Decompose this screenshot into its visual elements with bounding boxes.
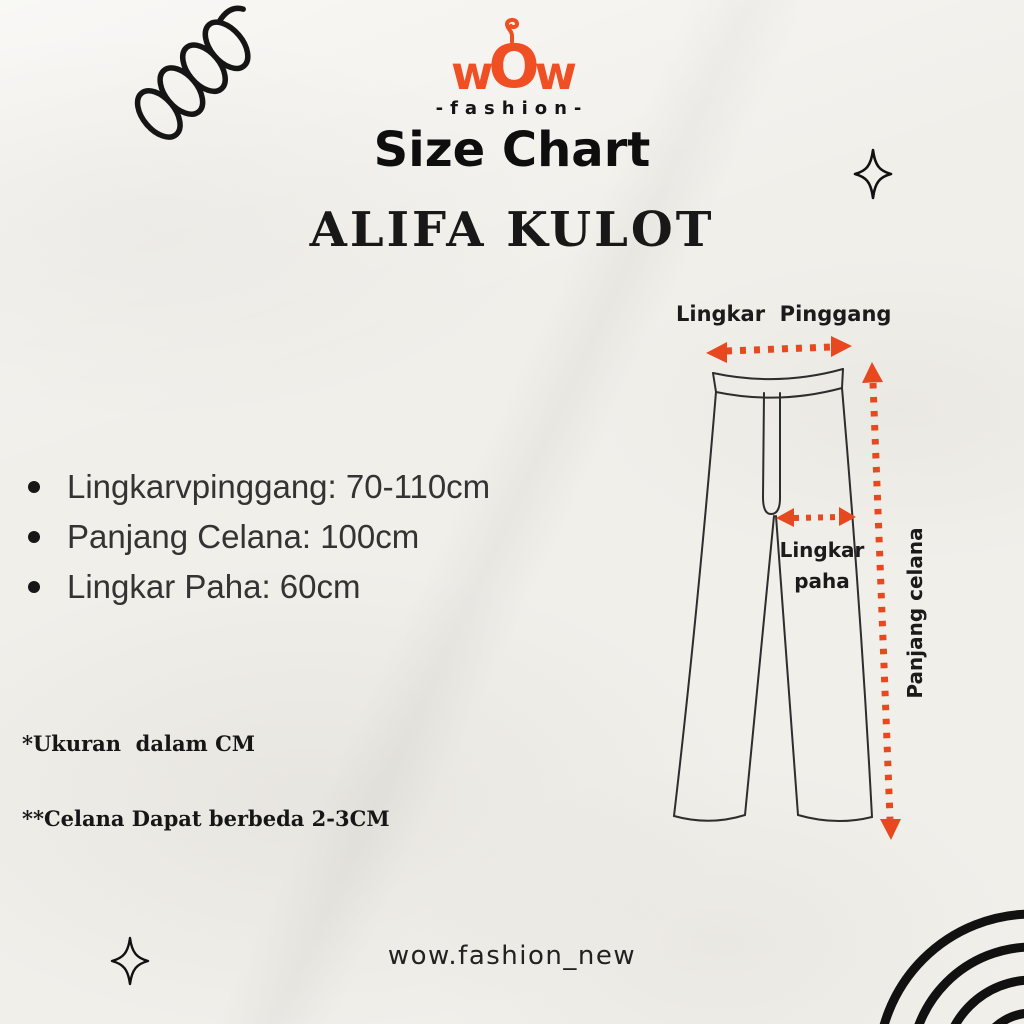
measurement-text: Lingkar Paha: 60cm <box>67 568 361 606</box>
footnote-line: *Ukuran dalam CM <box>22 731 390 756</box>
footnote-line: **Celana Dapat berbeda 2-3CM <box>22 806 390 831</box>
logo-letter: w <box>535 53 574 94</box>
page-title: Size Chart <box>0 122 1024 178</box>
waist-measure-label: Lingkar Pinggang <box>676 302 886 326</box>
waist-measure-arrow <box>706 336 852 363</box>
logo-letter: w <box>451 53 490 94</box>
product-name: ALIFA KULOT <box>0 202 1024 258</box>
length-measure-label: Panjang celana <box>903 523 929 703</box>
measurement-text: Panjang Celana: 100cm <box>67 518 419 556</box>
measurement-list: Lingkarvpinggang: 70-110cm Panjang Celan… <box>28 462 490 612</box>
logo-letter: O <box>488 40 535 94</box>
length-measure-arrow <box>862 362 901 840</box>
measurement-item-waist: Lingkarvpinggang: 70-110cm <box>28 462 490 512</box>
hanger-hook-icon <box>497 14 527 44</box>
measurement-item-thigh: Lingkar Paha: 60cm <box>28 562 490 612</box>
measurement-item-length: Panjang Celana: 100cm <box>28 512 490 562</box>
bullet-dot-icon <box>28 481 40 493</box>
measurement-text: Lingkarvpinggang: 70-110cm <box>67 468 490 506</box>
thigh-measure-arrow <box>776 507 856 527</box>
bullet-dot-icon <box>28 531 40 543</box>
social-handle: wow.fashion_new <box>0 941 1024 971</box>
size-chart-poster: w O w -fashion- Size Chart ALIFA KULOT L… <box>0 0 1024 1024</box>
footnotes: *Ukuran dalam CM **Celana Dapat berbeda … <box>22 681 390 881</box>
bullet-dot-icon <box>28 581 40 593</box>
thigh-measure-label: Lingkar paha <box>777 535 867 597</box>
brand-logo: w O w <box>451 14 573 94</box>
brand-block: w O w -fashion- <box>0 14 1024 119</box>
